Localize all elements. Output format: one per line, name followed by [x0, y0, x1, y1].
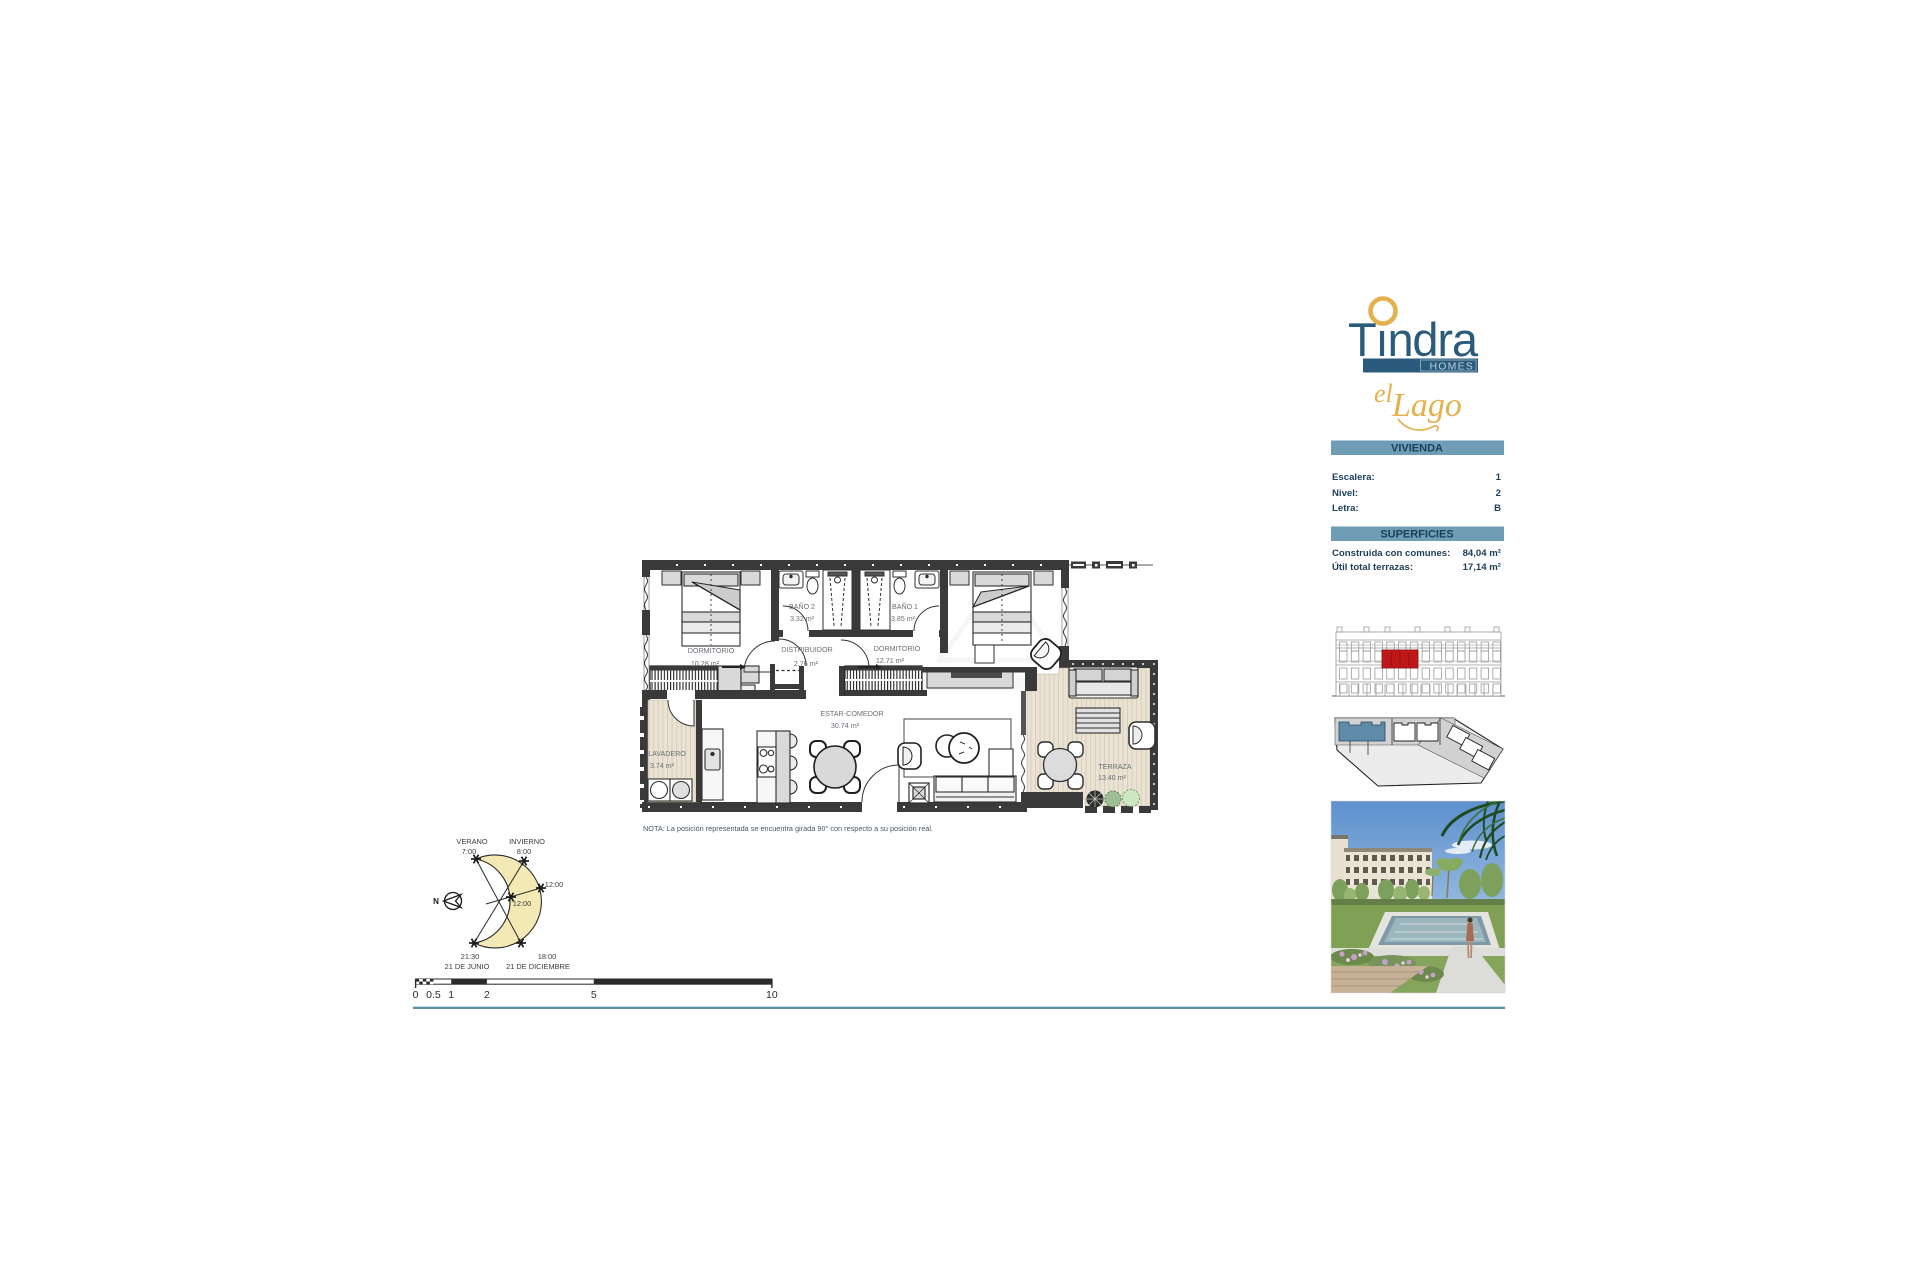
svg-text:Construida con comunes:: Construida con comunes: — [1332, 548, 1450, 559]
svg-text:HOMES: HOMES — [1429, 361, 1474, 373]
svg-text:21 DE DICIEMBRE: 21 DE DICIEMBRE — [506, 962, 570, 971]
svg-text:2.76 m²: 2.76 m² — [794, 659, 819, 668]
svg-text:2: 2 — [484, 989, 490, 1001]
svg-text:1: 1 — [1496, 472, 1502, 483]
svg-text:SUPERFICIES: SUPERFICIES — [1380, 529, 1453, 541]
svg-text:DORMITORIO: DORMITORIO — [874, 644, 921, 653]
svg-text:30.74 m²: 30.74 m² — [831, 721, 860, 730]
svg-text:13.40 m²: 13.40 m² — [1098, 774, 1127, 782]
svg-text:0.5: 0.5 — [426, 989, 441, 1001]
svg-text:8:00: 8:00 — [517, 847, 531, 856]
svg-text:B: B — [1494, 503, 1501, 514]
svg-text:5: 5 — [591, 989, 597, 1001]
svg-text:DORMITORIO: DORMITORIO — [688, 646, 735, 655]
svg-text:NOTA: La posición representada: NOTA: La posición representada se encuen… — [643, 824, 933, 833]
svg-text:N: N — [433, 897, 439, 906]
svg-text:12.71 m²: 12.71 m² — [876, 656, 905, 665]
svg-text:3.74 m²: 3.74 m² — [650, 762, 675, 770]
svg-text:21:30: 21:30 — [461, 952, 480, 961]
svg-text:TERRAZA: TERRAZA — [1098, 763, 1131, 771]
svg-text:10.28 m²: 10.28 m² — [691, 659, 720, 668]
svg-text:VERANO: VERANO — [456, 837, 487, 846]
svg-text:Útil total terrazas:: Útil total terrazas: — [1332, 561, 1413, 573]
svg-text:3.32 m²: 3.32 m² — [790, 615, 815, 623]
svg-text:10: 10 — [766, 989, 778, 1001]
svg-text:84,04 m²: 84,04 m² — [1463, 548, 1501, 559]
svg-text:Lago: Lago — [1391, 387, 1462, 424]
svg-text:3.85 m²: 3.85 m² — [891, 615, 916, 623]
svg-text:12:00: 12:00 — [545, 880, 564, 889]
svg-text:17,14 m²: 17,14 m² — [1463, 562, 1501, 573]
svg-text:ESTAR-COMEDOR: ESTAR-COMEDOR — [820, 709, 883, 718]
svg-text:INVIERNO: INVIERNO — [509, 837, 545, 846]
svg-text:Letra:: Letra: — [1332, 503, 1359, 514]
svg-text:Tındra: Tındra — [1348, 313, 1479, 366]
svg-text:BAÑO 1: BAÑO 1 — [892, 602, 918, 611]
svg-text:2: 2 — [1496, 488, 1501, 499]
svg-text:VIVIENDA: VIVIENDA — [1391, 443, 1443, 455]
svg-text:1: 1 — [448, 989, 454, 1001]
svg-text:0: 0 — [413, 989, 419, 1001]
svg-text:Escalera:: Escalera: — [1332, 472, 1375, 483]
svg-text:18:00: 18:00 — [538, 952, 557, 961]
svg-text:LAVADERO: LAVADERO — [648, 750, 686, 758]
svg-text:Nivel:: Nivel: — [1332, 488, 1358, 499]
svg-text:12:00: 12:00 — [513, 899, 532, 908]
svg-text:DISTRIBUIDOR: DISTRIBUIDOR — [781, 645, 833, 654]
svg-text:7:00: 7:00 — [462, 847, 476, 856]
svg-text:BAÑO 2: BAÑO 2 — [789, 602, 815, 611]
svg-text:el: el — [1374, 379, 1393, 408]
svg-text:21 DE JUNIO: 21 DE JUNIO — [445, 962, 490, 971]
